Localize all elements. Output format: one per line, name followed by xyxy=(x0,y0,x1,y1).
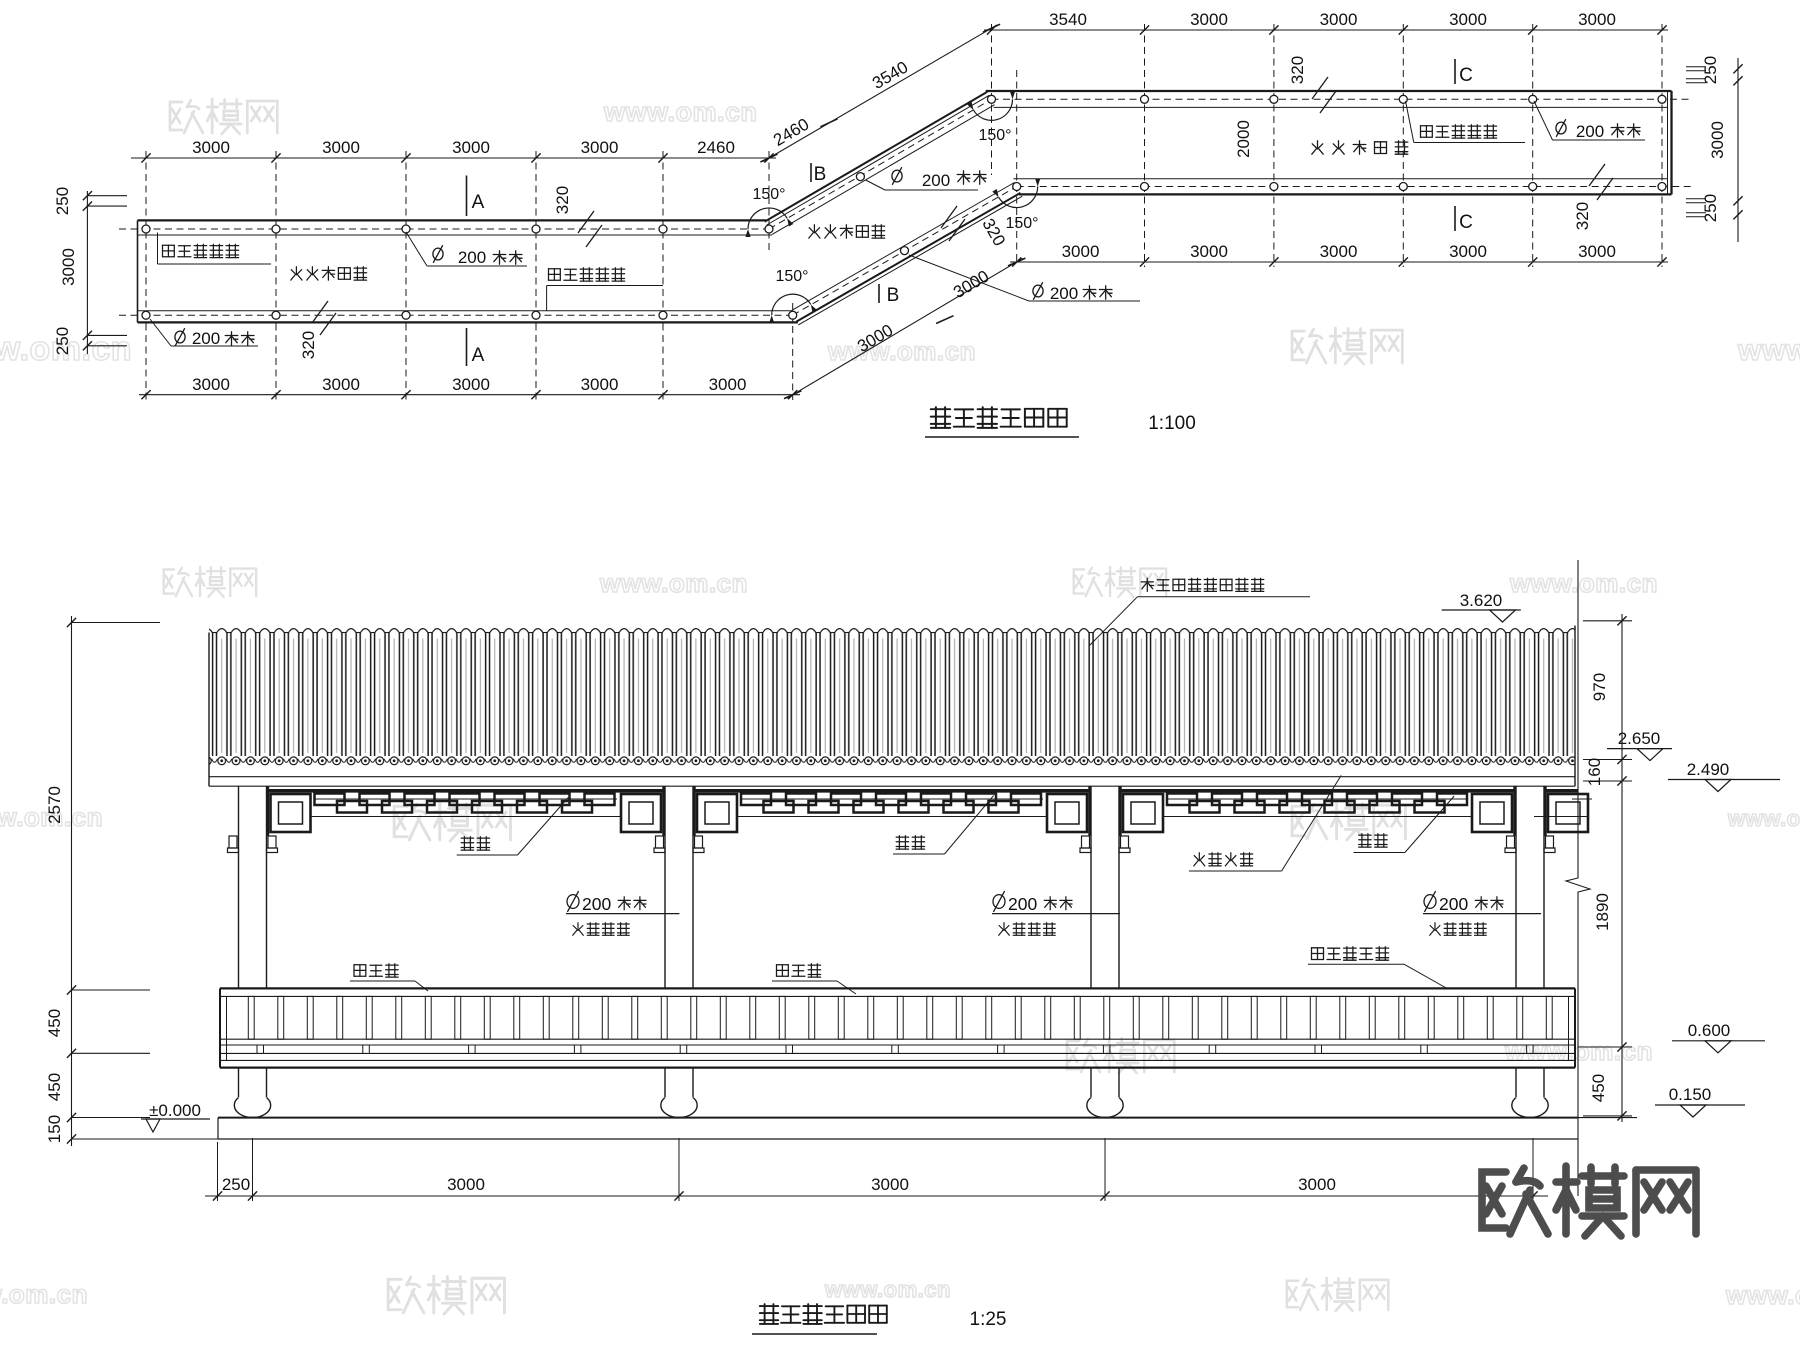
svg-text:3000: 3000 xyxy=(1578,10,1616,29)
svg-text:3000: 3000 xyxy=(192,375,230,394)
svg-text:3000: 3000 xyxy=(452,138,490,157)
svg-text:970: 970 xyxy=(1590,673,1609,701)
svg-text:3000: 3000 xyxy=(1449,242,1487,261)
svg-text:200: 200 xyxy=(582,894,611,914)
svg-text:200: 200 xyxy=(922,171,950,190)
svg-text:3000: 3000 xyxy=(1708,121,1727,159)
svg-text:www.om.cn: www.om.cn xyxy=(0,1279,88,1309)
svg-text:320: 320 xyxy=(1573,202,1592,230)
svg-text:A: A xyxy=(472,192,485,213)
svg-text:1890: 1890 xyxy=(1593,893,1612,931)
svg-text:www.om.cn: www.om.cn xyxy=(603,97,758,127)
svg-text:3000: 3000 xyxy=(1062,242,1100,261)
svg-text:0.600: 0.600 xyxy=(1688,1021,1731,1040)
svg-text:150°: 150° xyxy=(752,186,785,203)
svg-text:3000: 3000 xyxy=(1190,10,1228,29)
svg-text:1:100: 1:100 xyxy=(1148,413,1196,434)
svg-text:3000: 3000 xyxy=(1298,1175,1336,1194)
svg-text:150°: 150° xyxy=(978,127,1011,144)
svg-text:±0.000: ±0.000 xyxy=(149,1101,201,1120)
svg-text:3000: 3000 xyxy=(1578,242,1616,261)
svg-text:3000: 3000 xyxy=(452,375,490,394)
svg-text:450: 450 xyxy=(1589,1074,1608,1102)
svg-text:3.620: 3.620 xyxy=(1460,591,1503,610)
svg-text:200: 200 xyxy=(458,248,486,267)
svg-text:B: B xyxy=(887,285,900,306)
svg-text:250: 250 xyxy=(1701,194,1720,222)
svg-text:3000: 3000 xyxy=(192,138,230,157)
svg-text:3000: 3000 xyxy=(1320,10,1358,29)
svg-text:160: 160 xyxy=(1585,758,1604,786)
svg-text:1:25: 1:25 xyxy=(970,1309,1007,1330)
svg-text:320: 320 xyxy=(299,331,318,359)
svg-text:2000: 2000 xyxy=(1234,120,1253,158)
svg-text:C: C xyxy=(1459,65,1473,86)
svg-text:2570: 2570 xyxy=(45,786,64,824)
svg-text:www.om.cn: www.om.cn xyxy=(1509,568,1658,598)
svg-text:C: C xyxy=(1459,212,1473,233)
svg-text:3000: 3000 xyxy=(581,375,619,394)
svg-text:250: 250 xyxy=(53,327,72,355)
svg-text:3000: 3000 xyxy=(581,138,619,157)
svg-text:3000: 3000 xyxy=(59,248,78,286)
svg-text:www.o: www.o xyxy=(1725,1280,1800,1310)
svg-text:www.om.cn: www.om.cn xyxy=(824,1277,951,1302)
svg-text:200: 200 xyxy=(192,329,220,348)
svg-text:2460: 2460 xyxy=(697,138,735,157)
svg-text:320: 320 xyxy=(553,186,572,214)
svg-text:3000: 3000 xyxy=(322,138,360,157)
svg-text:200: 200 xyxy=(1576,122,1604,141)
svg-text:3000: 3000 xyxy=(1190,242,1228,261)
svg-text:0.150: 0.150 xyxy=(1669,1085,1712,1104)
svg-text:250: 250 xyxy=(53,187,72,215)
svg-text:200: 200 xyxy=(1050,284,1078,303)
svg-text:2.650: 2.650 xyxy=(1618,729,1661,748)
svg-text:3000: 3000 xyxy=(709,375,747,394)
svg-text:3000: 3000 xyxy=(1320,242,1358,261)
svg-text:150°: 150° xyxy=(775,268,808,285)
svg-text:3000: 3000 xyxy=(871,1175,909,1194)
svg-text:450: 450 xyxy=(45,1073,64,1101)
svg-text:3540: 3540 xyxy=(1049,10,1087,29)
svg-text:www.om: www.om xyxy=(1737,334,1800,367)
svg-text:450: 450 xyxy=(45,1009,64,1037)
svg-text:3000: 3000 xyxy=(447,1175,485,1194)
svg-text:B: B xyxy=(814,164,827,185)
svg-text:www.om.cn: www.om.cn xyxy=(599,568,748,598)
svg-text:2.490: 2.490 xyxy=(1687,760,1730,779)
svg-text:3000: 3000 xyxy=(322,375,360,394)
svg-text:320: 320 xyxy=(1288,56,1307,84)
svg-text:200: 200 xyxy=(1439,894,1468,914)
svg-text:200: 200 xyxy=(1008,894,1037,914)
svg-text:3000: 3000 xyxy=(1449,10,1487,29)
svg-text:www.om.cn: www.om.cn xyxy=(1727,806,1800,831)
svg-text:A: A xyxy=(472,345,485,366)
svg-text:250: 250 xyxy=(222,1175,250,1194)
svg-text:250: 250 xyxy=(1701,56,1720,84)
svg-text:150°: 150° xyxy=(1005,215,1038,232)
svg-text:150: 150 xyxy=(45,1115,64,1143)
